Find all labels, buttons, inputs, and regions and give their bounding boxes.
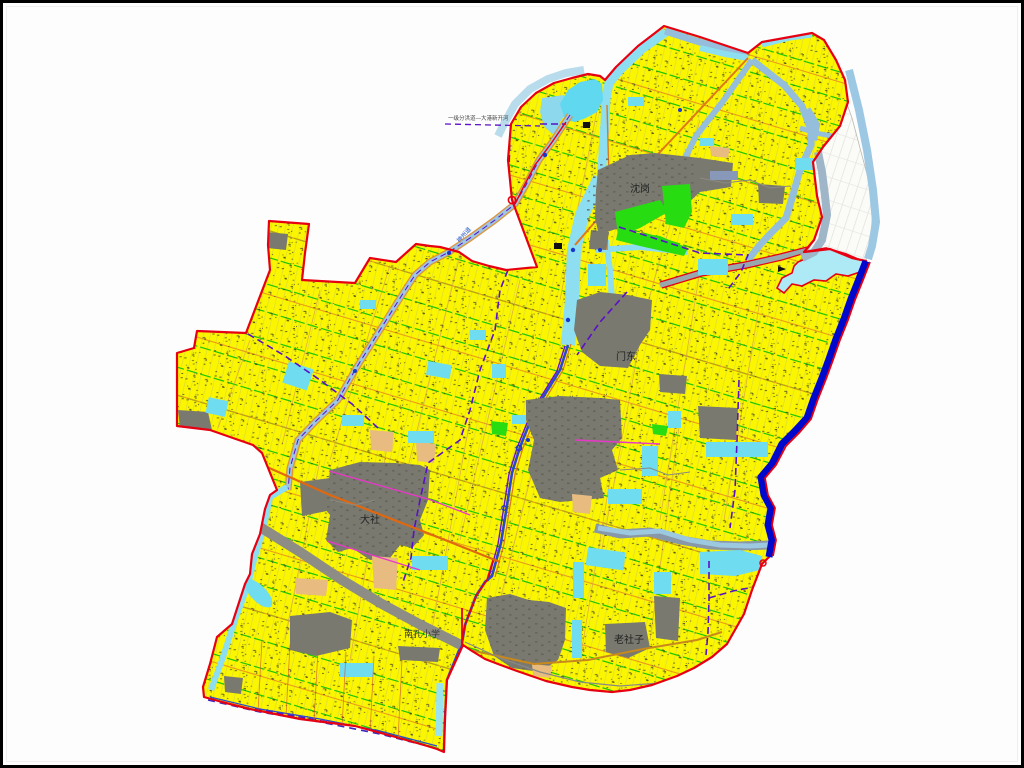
svg-text:老社子: 老社子 <box>614 633 644 646</box>
svg-text:大社: 大社 <box>360 513 380 526</box>
svg-text:南孔小学: 南孔小学 <box>404 628 440 639</box>
svg-text:门东: 门东 <box>616 350 636 363</box>
svg-text:沈岗: 沈岗 <box>630 182 650 195</box>
svg-text:一级分洪道—大港新开河: 一级分洪道—大港新开河 <box>448 114 509 122</box>
